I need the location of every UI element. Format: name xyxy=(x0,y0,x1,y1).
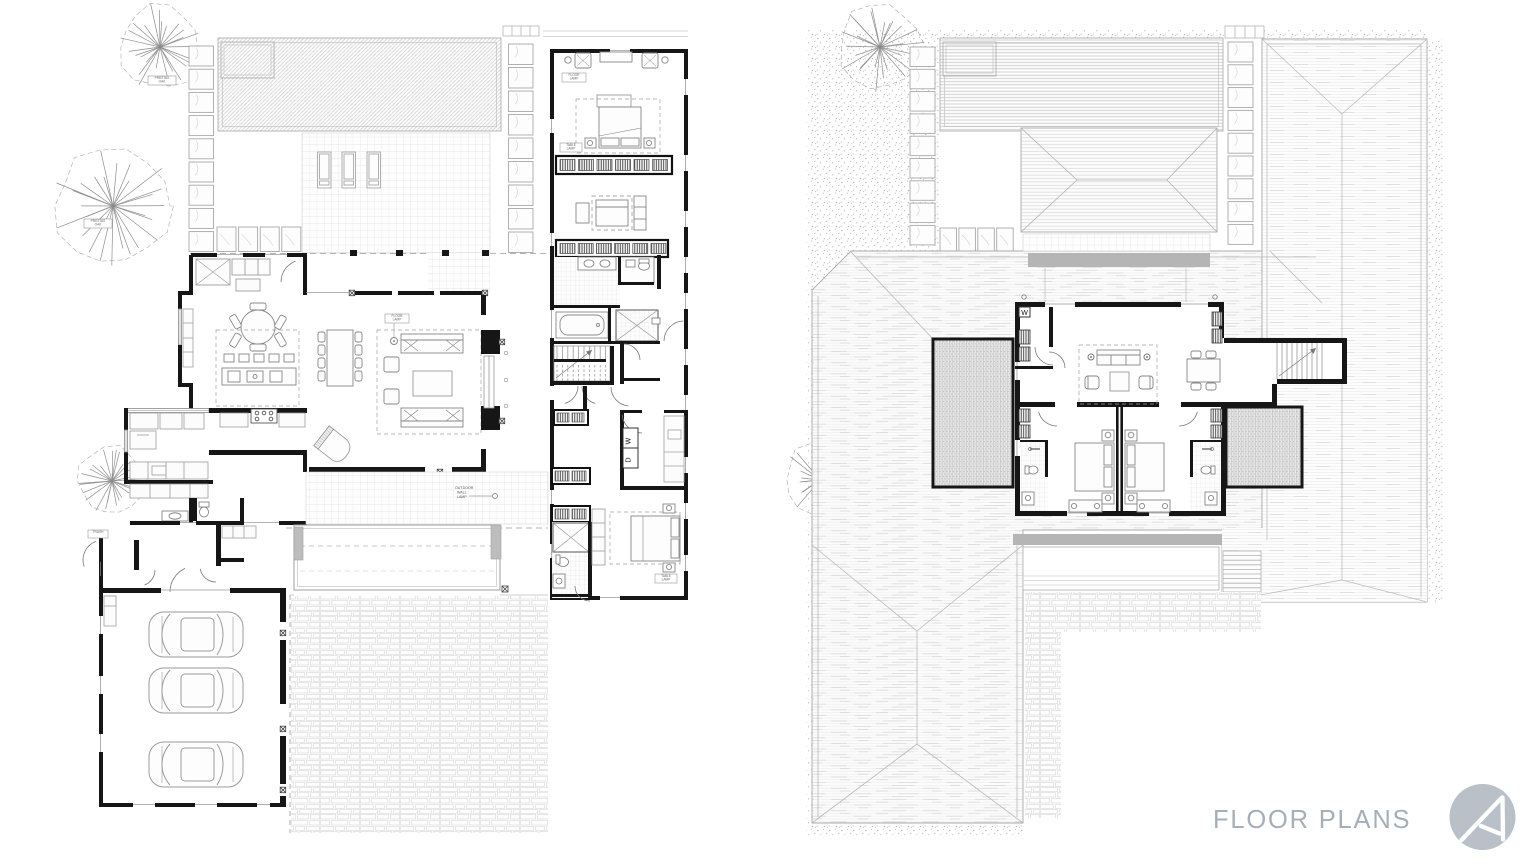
svg-text:OUTDOOR: OUTDOOR xyxy=(455,486,474,490)
svg-text:TRASH: TRASH xyxy=(93,530,105,534)
svg-text:OAK: OAK xyxy=(95,223,103,227)
svg-text:D: D xyxy=(626,457,633,462)
svg-text:FLOOR PLANS: FLOOR PLANS xyxy=(1213,806,1411,834)
svg-text:LAMP: LAMP xyxy=(662,578,671,582)
svg-text:OAK: OAK xyxy=(159,80,167,84)
svg-text:LAMP: LAMP xyxy=(567,147,576,151)
svg-text:LAMP: LAMP xyxy=(570,77,579,81)
svg-text:WALL: WALL xyxy=(457,491,467,495)
svg-text:W: W xyxy=(1021,310,1028,317)
svg-text:LAMP: LAMP xyxy=(393,318,402,322)
svg-text:LAMP: LAMP xyxy=(457,495,467,499)
svg-text:W: W xyxy=(626,437,633,444)
